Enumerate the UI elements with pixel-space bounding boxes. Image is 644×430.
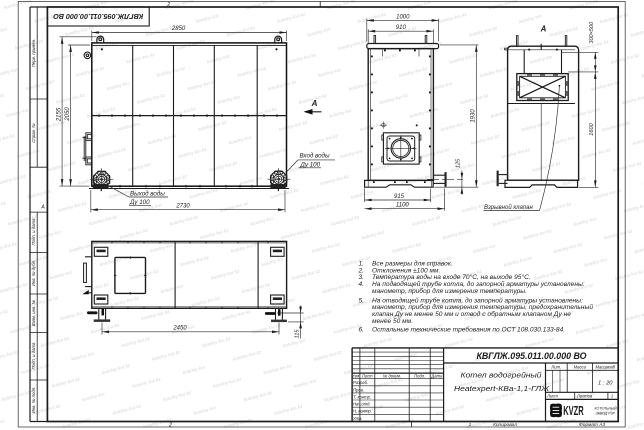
svg-text:клапан Ду не менее 50 мм и отв: клапан Ду не менее 50 мм и отвод с обрат…	[372, 310, 571, 318]
svg-text:5.: 5.	[359, 297, 365, 304]
svg-text:Разраб.: Разраб.	[353, 380, 368, 385]
svg-text:1 : 20: 1 : 20	[598, 381, 613, 387]
svg-text:910: 910	[396, 25, 407, 31]
svg-text:Масштаб: Масштаб	[596, 365, 616, 370]
svg-text:1100: 1100	[396, 203, 410, 209]
svg-text:1000: 1000	[396, 14, 410, 20]
svg-text:Котел водогрейный: Котел водогрейный	[461, 371, 543, 380]
svg-text:Н. контр.: Н. контр.	[353, 409, 372, 414]
svg-text:Листов: Листов	[576, 394, 593, 399]
svg-text:А: А	[311, 99, 318, 108]
svg-text:КОТЕЛЬНЫЙ: КОТЕЛЬНЫЙ	[595, 407, 618, 411]
svg-text:125: 125	[455, 158, 461, 168]
svg-text:Остальные технические требован: Остальные технические требования по ОСТ …	[372, 325, 565, 333]
svg-text:Подп.: Подп.	[414, 373, 425, 378]
svg-text:2: 2	[168, 422, 172, 428]
svg-text:Лит.: Лит.	[550, 365, 561, 370]
svg-text:Heatexpert-КВа-1,1-ГЛЖ: Heatexpert-КВа-1,1-ГЛЖ	[454, 384, 550, 393]
svg-text:Формат А3: Формат А3	[579, 422, 606, 428]
svg-text:На подводящей трубе котла, до: На подводящей трубе котла, до запорной а…	[372, 280, 585, 288]
svg-text:1: 1	[611, 394, 613, 399]
svg-text:Масса: Масса	[574, 365, 587, 370]
svg-text:А: А	[540, 25, 547, 34]
svg-text:КВГЛЖ.095.011.00.000 ВО: КВГЛЖ.095.011.00.000 ВО	[53, 12, 143, 21]
svg-text:КВГЛЖ.095.011.00.000 ВО: КВГЛЖ.095.011.00.000 ВО	[477, 351, 587, 361]
svg-text:Копировал: Копировал	[493, 422, 517, 428]
svg-text:Подп. и дата: Подп. и дата	[31, 342, 36, 370]
svg-text:Т. контр.: Т. контр.	[353, 394, 371, 399]
svg-text:Нач.отд.: Нач.отд.	[353, 402, 371, 407]
svg-text:Утв.: Утв.	[353, 416, 363, 421]
svg-text:Справ. №: Справ. №	[31, 123, 36, 143]
svg-text:2: 2	[166, 2, 170, 8]
svg-text:ЗАВОД РЗР: ЗАВОД РЗР	[596, 412, 616, 416]
svg-text:На отводящей трубе котла, до з: На отводящей трубе котла, до запорной ар…	[372, 296, 583, 304]
svg-text:1600: 1600	[589, 122, 595, 135]
svg-text:А: А	[40, 205, 45, 211]
svg-text:Инв. № подл.: Инв. № подл.	[31, 387, 36, 414]
svg-text:Ду 100: Ду 100	[300, 162, 321, 169]
svg-text:1: 1	[469, 422, 472, 428]
svg-text:Ду 100: Ду 100	[129, 199, 150, 206]
svg-text:Лист: Лист	[361, 373, 373, 378]
svg-text:1930: 1930	[471, 109, 477, 123]
svg-text:Инв. № дубл.: Инв. № дубл.	[31, 260, 36, 286]
svg-text:300×500: 300×500	[589, 21, 595, 44]
svg-text:Вход воды: Вход воды	[300, 152, 330, 159]
svg-text:Лист: Лист	[546, 394, 558, 399]
svg-text:Дата: Дата	[430, 373, 443, 378]
svg-text:915: 915	[394, 194, 405, 200]
svg-text:2050: 2050	[65, 107, 71, 122]
svg-text:Температура воды на входе 70°С: Температура воды на входе 70°С, на выход…	[372, 273, 531, 281]
svg-text:№ докум.: № докум.	[383, 373, 401, 378]
svg-text:Подп. и дата: Подп. и дата	[31, 218, 36, 246]
svg-text:Выход воды: Выход воды	[130, 191, 165, 198]
svg-text:Пров.: Пров.	[353, 387, 364, 392]
svg-text:Перв. примен.: Перв. примен.	[31, 39, 36, 68]
svg-text:Все размеры для справок.: Все размеры для справок.	[372, 260, 453, 268]
svg-text:KVZR: KVZR	[563, 403, 584, 418]
svg-text:Взам. инв. №: Взам. инв. №	[31, 299, 36, 326]
svg-text:манометр, прибор для измерения: манометр, прибор для измерения температу…	[372, 287, 527, 295]
svg-text:Изм.: Изм.	[352, 373, 361, 378]
svg-text:манометр, прибор для измерения: манометр, прибор для измерения температу…	[372, 303, 593, 311]
svg-text:115: 115	[294, 329, 300, 339]
svg-text:2730: 2730	[175, 203, 190, 209]
svg-text:Взрывной клапан: Взрывной клапан	[484, 204, 533, 211]
svg-text:2450: 2450	[172, 325, 187, 331]
svg-text:6.: 6.	[359, 326, 365, 333]
svg-text:менее 50 мм.: менее 50 мм.	[372, 318, 413, 325]
svg-text:2155: 2155	[57, 107, 63, 122]
svg-text:2850: 2850	[171, 26, 186, 32]
svg-text:4.: 4.	[359, 281, 365, 288]
